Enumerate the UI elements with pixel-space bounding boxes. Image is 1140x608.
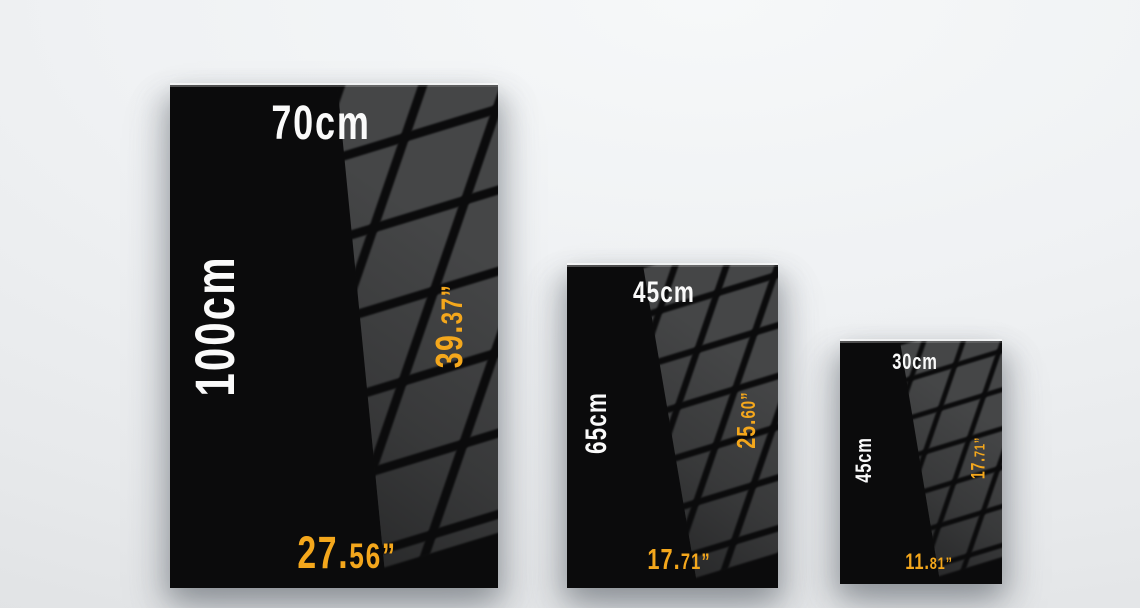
inch-mark: ” (701, 549, 710, 574)
poster-medium-65x45: 45cm 65cm 25.60” 17.71” (567, 265, 778, 588)
height-inch-label: 17.71” (970, 429, 989, 485)
poster-small-45x30: 30cm 45cm 17.71” 11.81” (840, 341, 1002, 584)
height-cm-label: 45cm (853, 430, 875, 491)
width-inch-label: 17.71” (637, 546, 722, 575)
height-cm-label: 65cm (582, 382, 612, 465)
inch-mark: ” (436, 284, 469, 297)
inch-mark: ” (738, 391, 760, 399)
width-inch-label: 27.56” (281, 530, 414, 575)
poster-large-100x70: 70cm 100cm 39.37” 27.56” (170, 85, 498, 588)
wall-background: 70cm 100cm 39.37” 27.56” 45cm 65cm 25.60… (0, 0, 1140, 608)
width-cm-label: 30cm (884, 351, 945, 373)
width-cm-label: 70cm (255, 100, 387, 148)
height-inch-label: 25.60” (733, 382, 759, 458)
height-cm-label: 100cm (187, 232, 243, 420)
inch-mark: ” (382, 537, 397, 576)
inch-mark: ” (946, 554, 953, 573)
width-cm-label: 45cm (623, 278, 706, 308)
inch-mark: ” (972, 437, 989, 443)
height-inch-label: 39.37” (431, 270, 469, 383)
width-inch-label: 11.81” (897, 551, 960, 573)
